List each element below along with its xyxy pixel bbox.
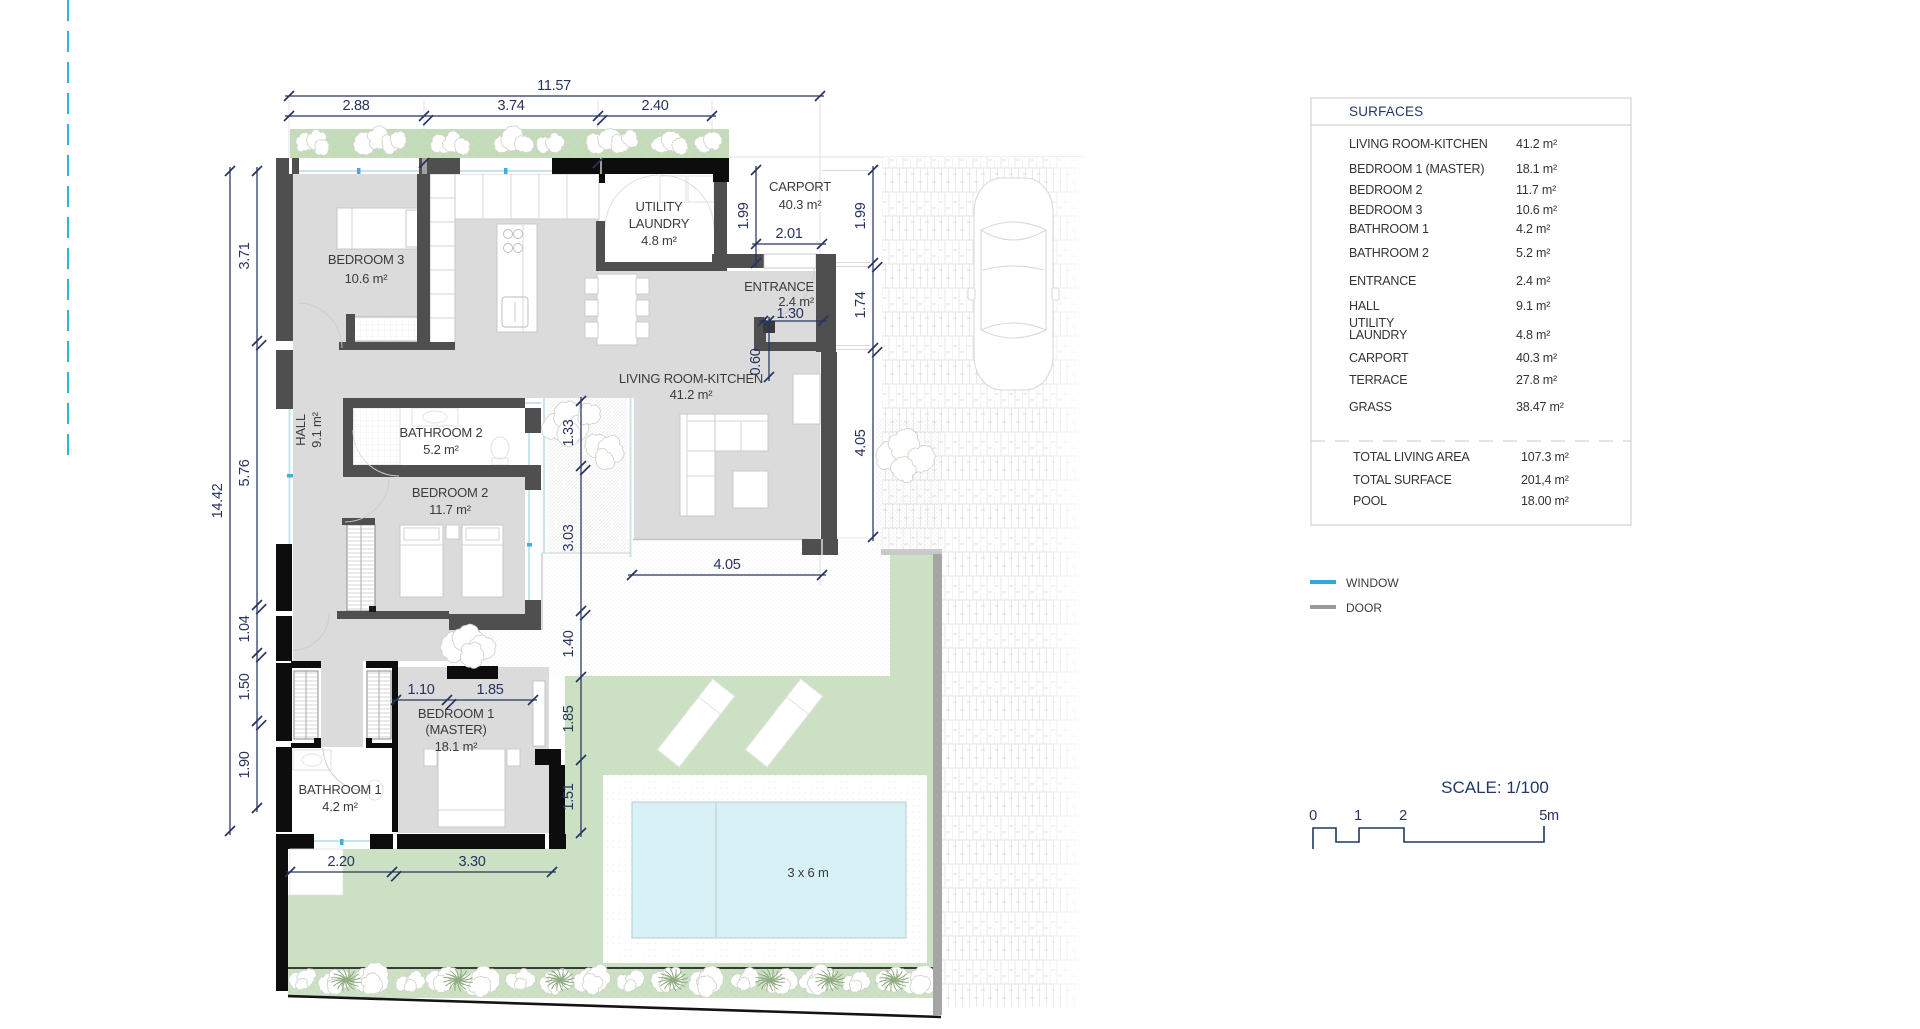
svg-text:DOOR: DOOR: [1346, 601, 1382, 615]
svg-text:2: 2: [1399, 808, 1407, 824]
svg-text:4.2 m²: 4.2 m²: [1516, 222, 1550, 236]
svg-text:(MASTER): (MASTER): [425, 722, 486, 737]
svg-text:WINDOW: WINDOW: [1346, 576, 1399, 590]
svg-text:HALL: HALL: [293, 414, 308, 446]
svg-text:1.85: 1.85: [561, 705, 577, 732]
svg-text:1.50: 1.50: [237, 673, 253, 700]
svg-text:9.1 m²: 9.1 m²: [309, 411, 324, 448]
svg-text:5.2 m²: 5.2 m²: [1516, 246, 1550, 260]
svg-text:4.8 m²: 4.8 m²: [641, 233, 678, 248]
svg-text:UTILITY: UTILITY: [636, 199, 684, 214]
svg-text:TERRACE: TERRACE: [1349, 373, 1407, 387]
svg-text:41.2 m²: 41.2 m²: [670, 387, 714, 402]
svg-text:2.40: 2.40: [641, 98, 668, 114]
svg-text:GRASS: GRASS: [1349, 400, 1392, 414]
svg-text:1.10: 1.10: [407, 682, 434, 698]
svg-text:5.2 m²: 5.2 m²: [423, 442, 460, 457]
svg-text:1.99: 1.99: [853, 202, 869, 229]
svg-text:4.2 m²: 4.2 m²: [322, 799, 359, 814]
svg-text:40.3 m²: 40.3 m²: [779, 197, 823, 212]
svg-text:2.4 m²: 2.4 m²: [778, 294, 815, 309]
svg-text:4.8 m²: 4.8 m²: [1516, 328, 1550, 342]
svg-text:3.30: 3.30: [458, 854, 485, 870]
svg-text:3 x 6 m: 3 x 6 m: [787, 865, 828, 880]
svg-text:TOTAL SURFACE: TOTAL SURFACE: [1353, 473, 1452, 487]
svg-text:BEDROOM 2: BEDROOM 2: [412, 485, 488, 500]
svg-text:HALL: HALL: [1349, 299, 1380, 313]
svg-text:POOL: POOL: [1353, 494, 1387, 508]
svg-text:1.40: 1.40: [561, 630, 577, 657]
svg-text:1: 1: [1354, 808, 1362, 824]
svg-text:18.1 m²: 18.1 m²: [435, 739, 479, 754]
svg-text:LAUNDRY: LAUNDRY: [629, 216, 690, 231]
svg-text:4.05: 4.05: [853, 429, 869, 456]
svg-text:11.7 m²: 11.7 m²: [429, 502, 472, 517]
svg-text:201,4 m²: 201,4 m²: [1521, 473, 1569, 487]
svg-text:BATHROOM 2: BATHROOM 2: [1349, 246, 1429, 260]
svg-text:LIVING ROOM-KITCHEN: LIVING ROOM-KITCHEN: [1349, 137, 1488, 151]
svg-text:38.47 m²: 38.47 m²: [1516, 400, 1564, 414]
svg-text:11.57: 11.57: [537, 78, 571, 94]
svg-text:5m: 5m: [1539, 808, 1559, 824]
svg-text:11.7 m²: 11.7 m²: [1516, 183, 1556, 197]
svg-text:1.74: 1.74: [853, 291, 869, 318]
svg-text:1.90: 1.90: [237, 751, 253, 778]
svg-text:TOTAL LIVING AREA: TOTAL LIVING AREA: [1353, 450, 1470, 464]
svg-text:SURFACES: SURFACES: [1349, 104, 1423, 119]
svg-text:1.99: 1.99: [736, 202, 752, 229]
svg-text:27.8 m²: 27.8 m²: [1516, 373, 1557, 387]
svg-text:9.1 m²: 9.1 m²: [1516, 299, 1550, 313]
svg-text:2.01: 2.01: [775, 226, 802, 242]
svg-text:BEDROOM 3: BEDROOM 3: [328, 252, 404, 267]
svg-text:1.04: 1.04: [237, 615, 253, 642]
svg-text:BEDROOM 3: BEDROOM 3: [1349, 203, 1422, 217]
svg-text:LIVING ROOM-KITCHEN: LIVING ROOM-KITCHEN: [619, 371, 763, 386]
svg-text:BEDROOM 2: BEDROOM 2: [1349, 183, 1422, 197]
svg-text:ENTRANCE: ENTRANCE: [1349, 274, 1416, 288]
svg-text:1.85: 1.85: [476, 682, 503, 698]
svg-text:BATHROOM 2: BATHROOM 2: [400, 425, 483, 440]
svg-text:BATHROOM 1: BATHROOM 1: [299, 782, 382, 797]
svg-text:LAUNDRY: LAUNDRY: [1349, 328, 1408, 342]
svg-text:1.33: 1.33: [561, 419, 577, 446]
svg-text:CARPORT: CARPORT: [1349, 351, 1409, 365]
svg-text:0: 0: [1309, 808, 1317, 824]
svg-text:18.1 m²: 18.1 m²: [1516, 162, 1557, 176]
svg-text:BEDROOM 1: BEDROOM 1: [418, 706, 494, 721]
svg-text:3.71: 3.71: [237, 242, 253, 269]
svg-text:SCALE: 1/100: SCALE: 1/100: [1441, 778, 1549, 797]
svg-text:2.20: 2.20: [327, 854, 354, 870]
svg-text:14.42: 14.42: [210, 483, 226, 518]
svg-text:40.3 m²: 40.3 m²: [1516, 351, 1557, 365]
svg-text:5.76: 5.76: [237, 459, 253, 486]
svg-text:41.2 m²: 41.2 m²: [1516, 137, 1557, 151]
svg-text:ENTRANCE: ENTRANCE: [744, 279, 814, 294]
svg-text:BEDROOM 1 (MASTER): BEDROOM 1 (MASTER): [1349, 162, 1484, 176]
svg-text:107.3 m²: 107.3 m²: [1521, 450, 1569, 464]
svg-text:10.6 m²: 10.6 m²: [1516, 203, 1557, 217]
svg-text:1.51: 1.51: [561, 783, 577, 810]
svg-text:CARPORT: CARPORT: [769, 179, 831, 194]
svg-text:3.74: 3.74: [497, 98, 524, 114]
svg-text:18.00 m²: 18.00 m²: [1521, 494, 1569, 508]
svg-text:3.03: 3.03: [561, 524, 577, 551]
svg-text:2.4 m²: 2.4 m²: [1516, 274, 1550, 288]
svg-text:2.88: 2.88: [342, 98, 369, 114]
svg-text:4.05: 4.05: [713, 557, 740, 573]
svg-text:BATHROOM 1: BATHROOM 1: [1349, 222, 1429, 236]
svg-text:10.6 m²: 10.6 m²: [345, 271, 389, 286]
